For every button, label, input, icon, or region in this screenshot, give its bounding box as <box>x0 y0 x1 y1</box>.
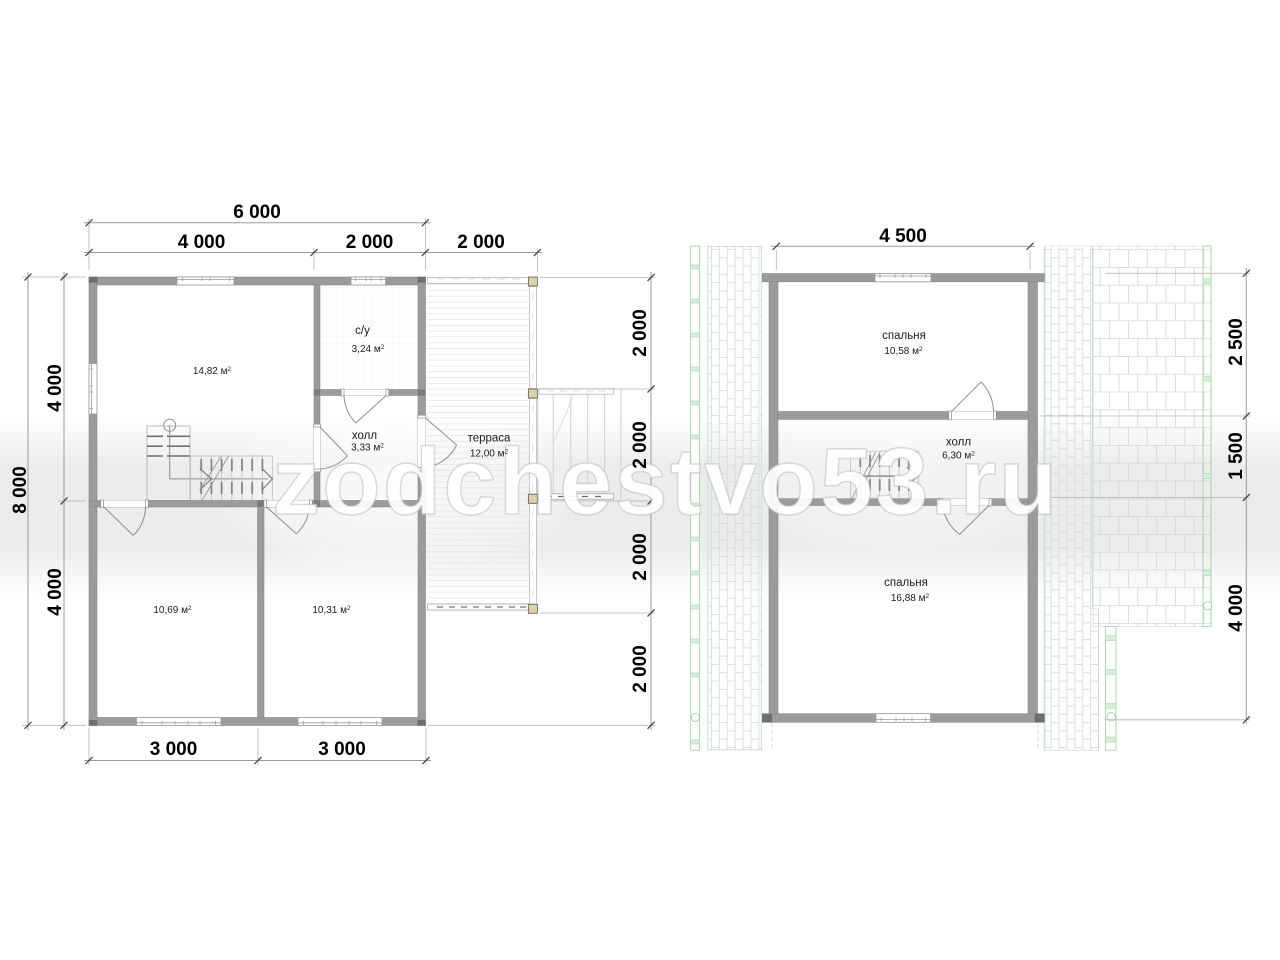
svg-text:10,31 м2: 10,31 м2 <box>312 605 351 616</box>
svg-text:2 000: 2 000 <box>630 645 651 693</box>
svg-text:3,24 м2: 3,24 м2 <box>352 344 385 355</box>
svg-text:с/у: с/у <box>355 325 370 337</box>
svg-text:4 000: 4 000 <box>45 364 66 412</box>
svg-text:10,58 м2: 10,58 м2 <box>884 346 923 357</box>
svg-text:4 500: 4 500 <box>879 226 927 247</box>
svg-text:14,82 м2: 14,82 м2 <box>193 366 232 377</box>
svg-text:2 500: 2 500 <box>1226 318 1247 366</box>
svg-text:zodchestvo53.ru: zodchestvo53.ru <box>272 429 1059 535</box>
svg-text:3 000: 3 000 <box>150 739 198 760</box>
svg-text:4 000: 4 000 <box>45 568 66 616</box>
svg-text:4 000: 4 000 <box>1226 584 1247 632</box>
svg-text:12,00 м2: 12,00 м2 <box>470 449 509 460</box>
svg-text:2 000: 2 000 <box>630 421 651 469</box>
svg-text:10,69 м2: 10,69 м2 <box>153 605 192 616</box>
svg-text:спальня: спальня <box>884 577 928 589</box>
svg-text:холл: холл <box>946 437 971 449</box>
svg-text:холл: холл <box>352 430 377 442</box>
svg-text:6 000: 6 000 <box>233 202 281 223</box>
svg-text:спальня: спальня <box>882 330 926 342</box>
svg-text:2 000: 2 000 <box>630 309 651 357</box>
svg-text:терраса: терраса <box>468 433 511 445</box>
svg-text:16,88 м2: 16,88 м2 <box>891 593 930 604</box>
svg-text:2 000: 2 000 <box>346 232 394 253</box>
svg-text:4 000: 4 000 <box>178 232 226 253</box>
svg-text:3,33 м2: 3,33 м2 <box>351 443 384 454</box>
svg-text:2 000: 2 000 <box>630 533 651 581</box>
svg-text:1 500: 1 500 <box>1226 432 1247 480</box>
svg-text:8 000: 8 000 <box>10 466 31 514</box>
svg-text:6,30 м2: 6,30 м2 <box>942 451 975 462</box>
svg-text:3 000: 3 000 <box>318 739 366 760</box>
svg-text:2 000: 2 000 <box>457 232 505 253</box>
